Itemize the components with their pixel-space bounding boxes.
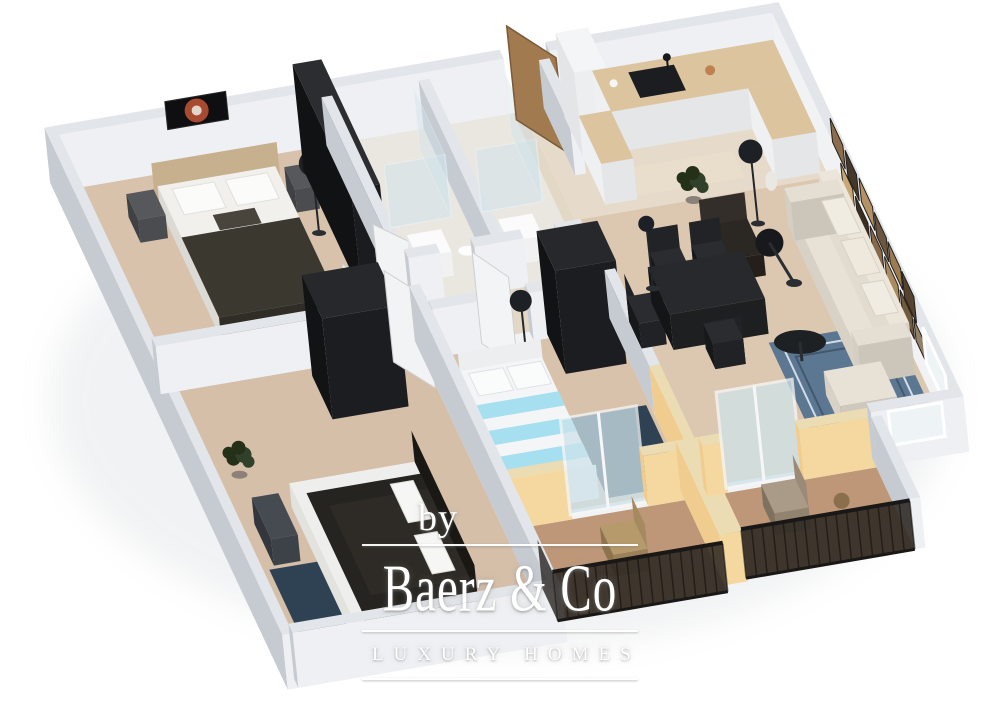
floor-lamp xyxy=(638,216,654,232)
plant xyxy=(697,181,709,193)
window xyxy=(888,403,945,446)
watermark-brand: Baerz & Co xyxy=(362,537,638,639)
floor-plan-image: by Baerz & Co LUXURY HOMES xyxy=(0,0,1000,710)
plant xyxy=(677,172,689,184)
nightstand xyxy=(138,215,168,243)
watermark-rule xyxy=(362,678,638,680)
watermark: by Baerz & Co LUXURY HOMES xyxy=(362,498,638,686)
bowl xyxy=(705,65,715,75)
kitchen-counter xyxy=(772,132,820,180)
balcony-table xyxy=(834,493,850,509)
jar xyxy=(610,79,618,87)
plant xyxy=(243,456,255,468)
plant xyxy=(223,447,235,459)
kitchen-counter xyxy=(601,158,637,204)
dresser xyxy=(271,535,300,566)
floor-lamp xyxy=(510,290,532,312)
floor-lamp xyxy=(739,140,763,164)
watermark-prefix: by xyxy=(300,498,576,538)
dining-chair xyxy=(713,339,746,369)
watermark-tagline: LUXURY HOMES xyxy=(362,638,638,672)
sculpture xyxy=(765,171,777,191)
plant-pot xyxy=(232,471,248,479)
